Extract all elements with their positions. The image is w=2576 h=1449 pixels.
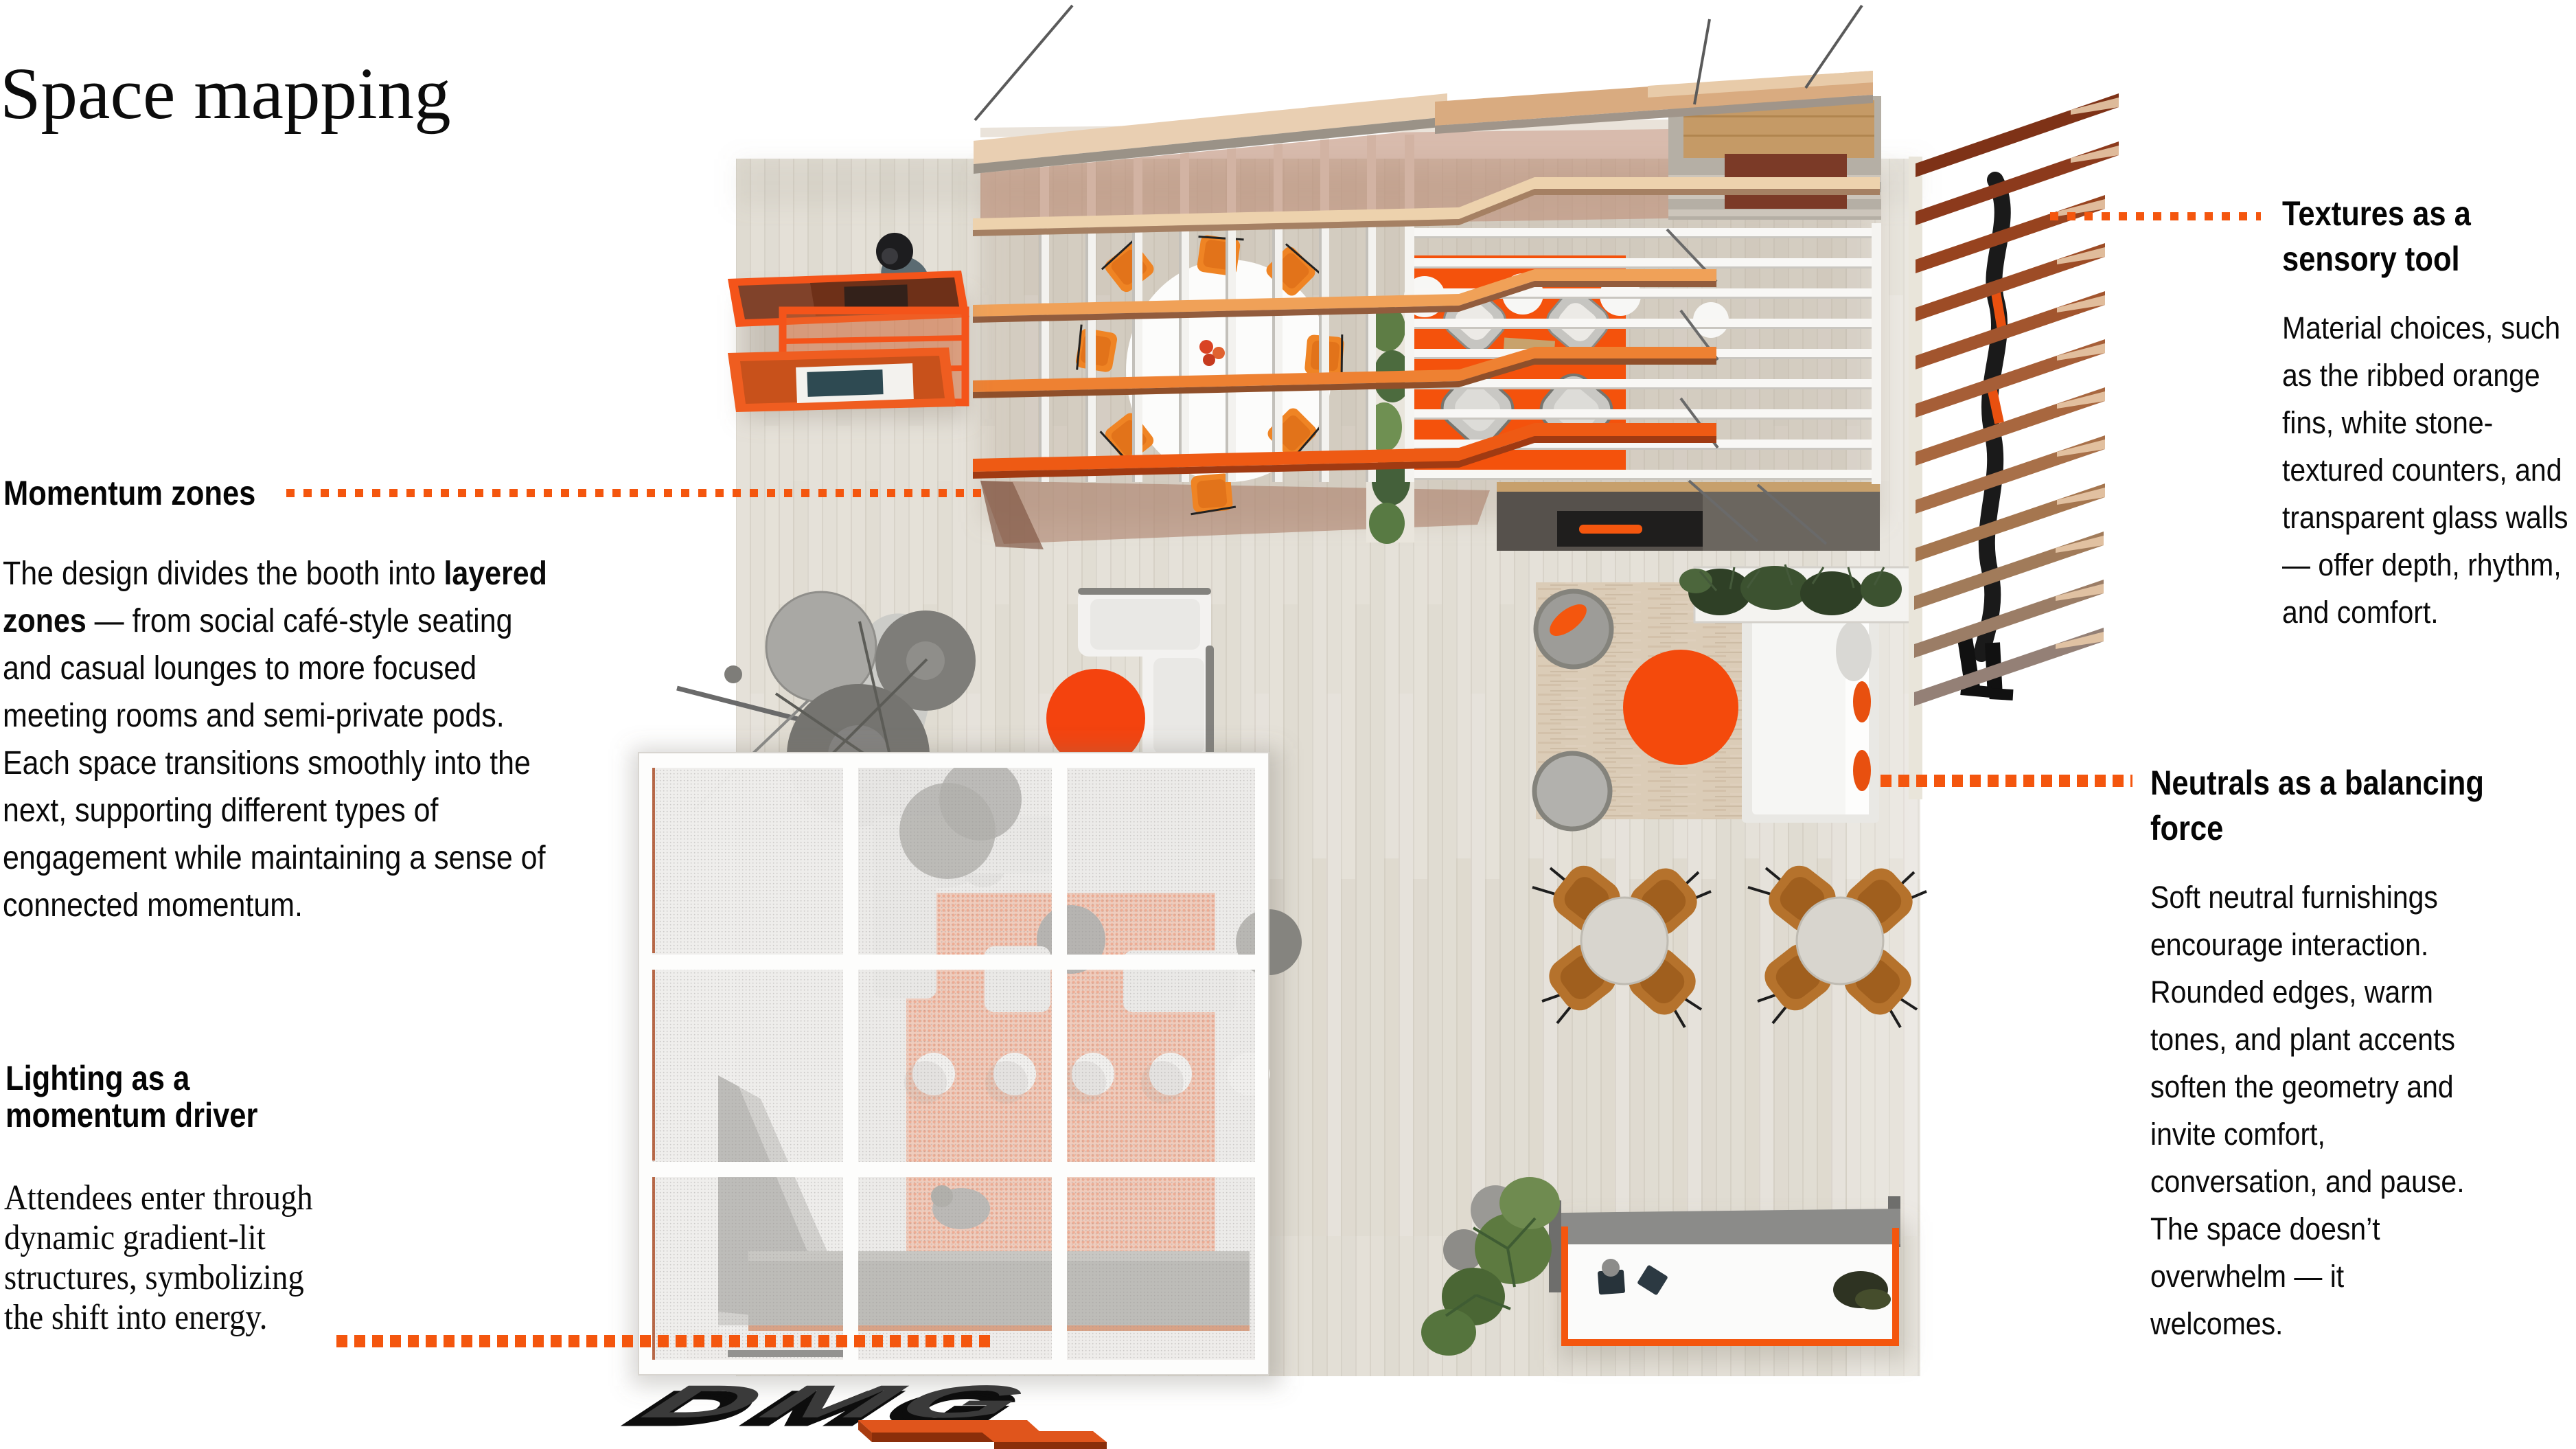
svg-text:DMG: DMG (629, 1376, 1054, 1427)
